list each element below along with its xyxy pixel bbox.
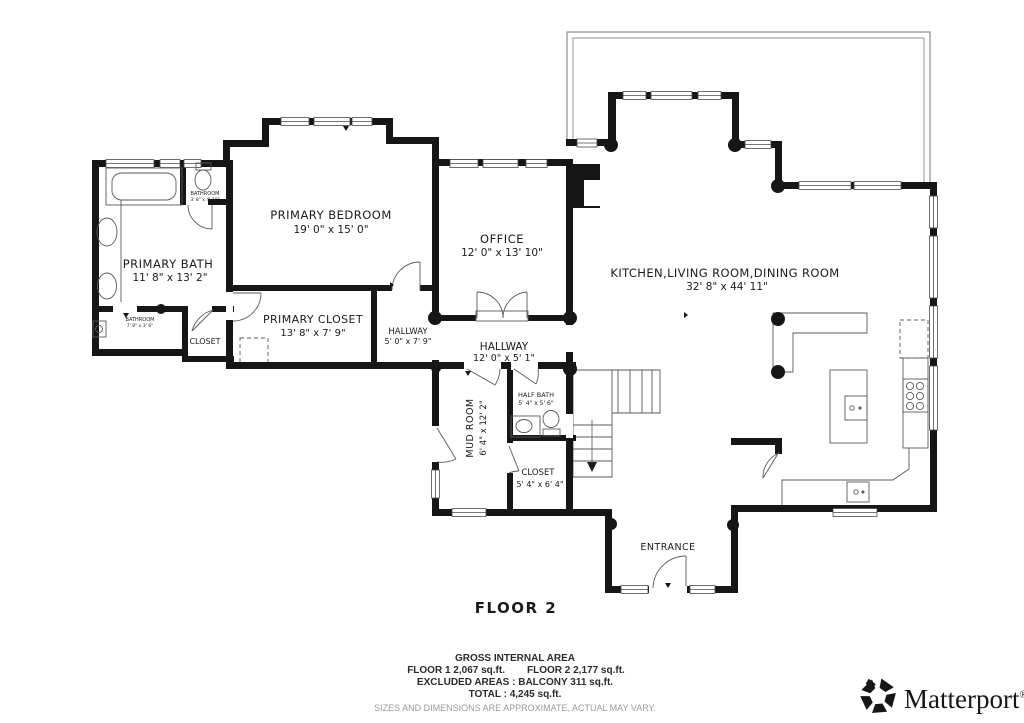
room-label-primary-bedroom: PRIMARY BEDROOM [270, 208, 392, 222]
closet-island [240, 338, 268, 364]
total-area: TOTAL : 4,245 sq.ft. [469, 689, 562, 700]
bath-fixtures [93, 163, 560, 437]
balcony-outline [567, 32, 930, 186]
right-counter [903, 358, 928, 448]
room-dims-closet-entry: 5' 4" x 6' 4" [516, 480, 563, 489]
room-dims-hallway-main: 12' 0" x 5' 1" [473, 353, 535, 364]
floor-plan-canvas: PRIMARY BEDROOM 19' 0" x 15' 0" OFFICE 1… [0, 0, 1024, 723]
floor2-area: FLOOR 2 2,177 sq.ft. [527, 665, 625, 676]
room-label-closet-bath: CLOSET [189, 337, 220, 346]
disclaimer: SIZES AND DIMENSIONS ARE APPROXIMATE, AC… [374, 703, 656, 713]
vanity-sink [97, 218, 117, 246]
room-label-bathroom-lower: BATHROOM [126, 317, 155, 323]
area-summary: GROSS INTERNAL AREA FLOOR 1 2,067 sq.ft.… [374, 653, 656, 713]
toilet-bowl [543, 411, 559, 428]
stairs-down-arrow [587, 462, 597, 472]
room-label-bathroom-upper: BATHROOM [191, 191, 220, 197]
room-dims-office: 12' 0" x 13' 10" [461, 247, 543, 259]
room-label-office: OFFICE [480, 232, 524, 246]
room-dims-primary-closet: 13' 8" x 7' 9" [280, 328, 345, 339]
room-label-primary-bath: PRIMARY BATH [123, 257, 214, 271]
chimney-slot [584, 180, 600, 206]
room-label-primary-closet: PRIMARY CLOSET [263, 313, 363, 326]
room-label-hallway-main: HALLWAY [480, 341, 529, 353]
room-label-closet-entry: CLOSET [521, 468, 555, 478]
floor-title: FLOOR 2 [475, 599, 557, 617]
bottom-counter [782, 448, 909, 509]
room-dims-half-bath: 5' 4" x 5' 6" [518, 400, 554, 407]
room-label-hallway-small: HALLWAY [388, 327, 428, 337]
refrigerator [900, 320, 928, 358]
room-dims-mud-room: 6' 4" x 12' 2" [479, 400, 489, 455]
room-dims-primary-bath: 11' 8" x 13' 2" [132, 272, 207, 284]
room-dims-kitchen: 32' 8" x 44' 11" [686, 281, 768, 293]
gross-area-title: GROSS INTERNAL AREA [455, 653, 575, 664]
toilet-bowl [195, 170, 211, 190]
kitchen-fixtures [773, 313, 928, 509]
room-dims-hallway-small: 5' 0" x 7' 9" [384, 337, 431, 346]
matterport-logo: Matterport® [860, 678, 1024, 714]
vanity-sink [98, 273, 117, 299]
island-sink [845, 396, 867, 420]
matterport-wordmark: Matterport® [904, 684, 1024, 714]
floor1-area: FLOOR 1 2,067 sq.ft. [407, 665, 505, 676]
room-dims-bathroom-upper: 3' 8" x 4' 10" [190, 197, 219, 203]
room-label-mud-room: MUD ROOM [465, 398, 476, 457]
column-dots [156, 138, 785, 531]
matterport-logo-icon [860, 678, 896, 712]
floor-plan-page: PRIMARY BEDROOM 19' 0" x 15' 0" OFFICE 1… [0, 0, 1024, 723]
doors [188, 205, 779, 588]
l-counter [773, 313, 867, 372]
room-dims-bathroom-lower: 7' 8" x 3' 6" [127, 323, 153, 329]
excluded-areas: EXCLUDED AREAS : BALCONY 311 sq.ft. [417, 677, 613, 688]
room-label-half-bath: HALF BATH [518, 391, 554, 399]
room-label-entrance: ENTRANCE [640, 542, 695, 553]
staircase [573, 370, 660, 477]
kitchen-island [830, 370, 867, 443]
toilet-tank [543, 429, 560, 436]
room-label-kitchen: KITCHEN,LIVING ROOM,DINING ROOM [610, 266, 839, 280]
room-dims-primary-bedroom: 19' 0" x 15' 0" [293, 224, 368, 236]
